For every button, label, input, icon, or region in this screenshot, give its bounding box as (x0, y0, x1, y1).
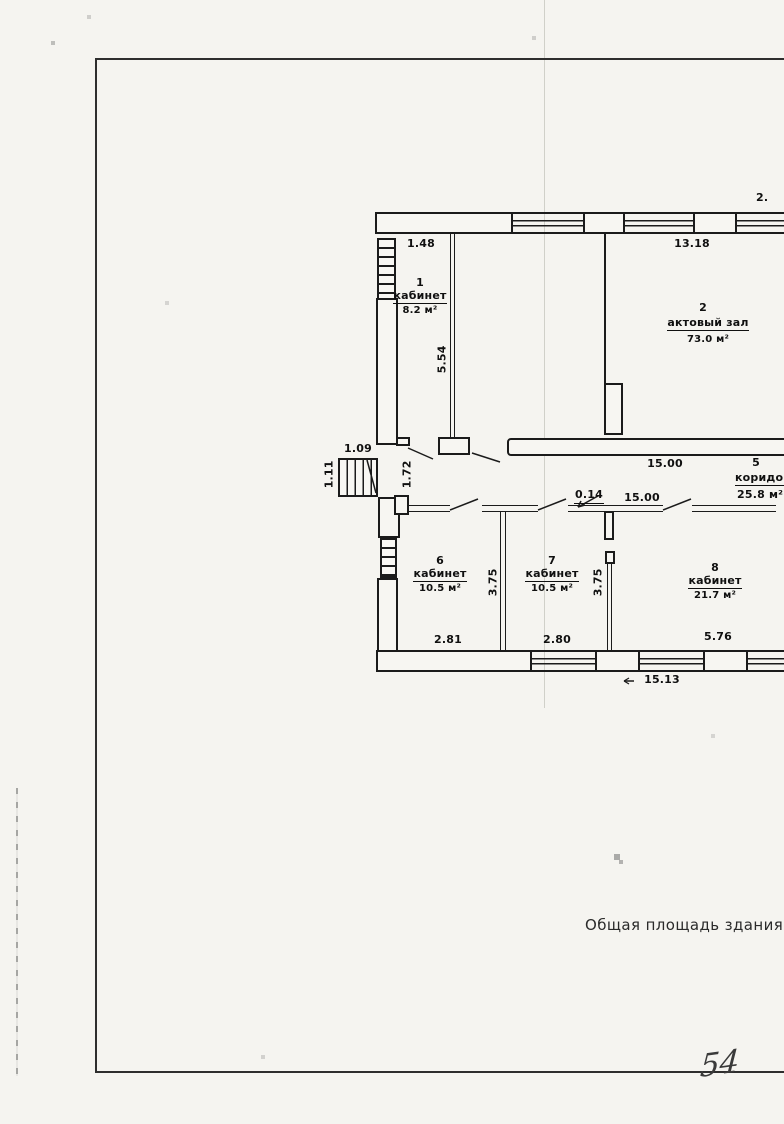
room5-name: коридор (735, 471, 784, 486)
wall-top-solid (375, 212, 513, 234)
window-bottom-3 (748, 650, 784, 672)
room7-name: кабинет (525, 567, 578, 582)
partition-room7-8 (607, 563, 612, 652)
dim-top-right-partial: 2. (756, 192, 784, 205)
partition-hall-right (604, 234, 606, 385)
room5-area: 25.8 м² (737, 489, 784, 502)
room2-area: 73.0 м² (666, 334, 750, 346)
dim-bottom-total: 15.13 (638, 674, 686, 687)
dim-entry-width: 1.72 (402, 456, 415, 492)
wall-corridor-seg4 (692, 505, 776, 512)
room7-area: 10.5 м² (525, 583, 579, 595)
pier-room1-door (438, 437, 470, 455)
wall-left-upper (376, 298, 398, 445)
dim-room7-width: 2.80 (535, 634, 579, 647)
pier-bottom-2 (703, 650, 748, 672)
window-bottom-2 (640, 650, 704, 672)
dim-room6-width: 2.81 (426, 634, 470, 647)
room1-name: кабинет (393, 289, 446, 304)
dim-stairs-depth: 1.11 (324, 456, 337, 492)
room6-name: кабинет (413, 567, 466, 582)
window-left-lower (380, 538, 397, 578)
room8-name: кабинет (688, 574, 741, 589)
stub-corridor (604, 511, 614, 540)
pier-hall (604, 383, 623, 435)
pier-top-2 (693, 212, 737, 234)
window-top-1 (513, 212, 583, 234)
pier-corridor-left (394, 495, 409, 515)
room7-number: 7 (530, 555, 574, 568)
pier-top-1 (583, 212, 625, 234)
wall-corridor-seg1 (409, 505, 450, 512)
dim-hall-top: 13.18 (667, 238, 717, 251)
wall-corridor-top (507, 438, 784, 456)
room8-area: 21.7 м² (688, 590, 742, 602)
dim-room8-width: 5.76 (696, 631, 740, 644)
room6-area: 10.5 м² (413, 583, 467, 595)
dim-corridor-top: 15.00 (635, 458, 695, 471)
room6-number: 6 (418, 555, 462, 568)
dim-room6-depth: 3.75 (488, 564, 501, 600)
window-top-3 (737, 212, 784, 234)
stairs (338, 458, 378, 497)
partition-room1-hall (450, 234, 455, 437)
dim-wall-thickness: 0.14 (574, 489, 604, 504)
dim-window-left: 1.48 (401, 238, 441, 251)
total-area-text: Общая площадь здания: 46 (585, 916, 784, 934)
window-bottom-1 (530, 650, 596, 672)
wall-bottom-solid (376, 650, 532, 672)
scan-edge-artifact (16, 788, 18, 1076)
room8-number: 8 (693, 562, 737, 575)
dim-room1-depth: 5.54 (437, 341, 450, 377)
wall-corridor-seg2 (482, 505, 538, 512)
handwritten-page-number: 54 (699, 1043, 741, 1085)
scanned-floor-plan-page: 1.48 13.18 2. 5.54 15.00 0.14 15.00 1.09… (0, 0, 784, 1124)
dim-stairs-width: 1.09 (338, 443, 378, 456)
scan-speckles (0, 0, 2, 2)
room2-name: актовый зал (667, 316, 748, 331)
wall-corridor-seg3 (568, 505, 663, 512)
window-top-2 (625, 212, 693, 234)
room5-number: 5 (736, 457, 776, 470)
room2-number: 2 (683, 302, 723, 315)
room1-number: 1 (400, 277, 440, 290)
pier-bottom-1 (595, 650, 640, 672)
dim-corridor-mid: 15.00 (620, 492, 664, 505)
dim-room7-depth: 3.75 (593, 564, 606, 600)
room1-area: 8.2 м² (392, 305, 448, 317)
wall-left-jamb (396, 437, 410, 446)
partition-room6-7 (500, 511, 506, 652)
